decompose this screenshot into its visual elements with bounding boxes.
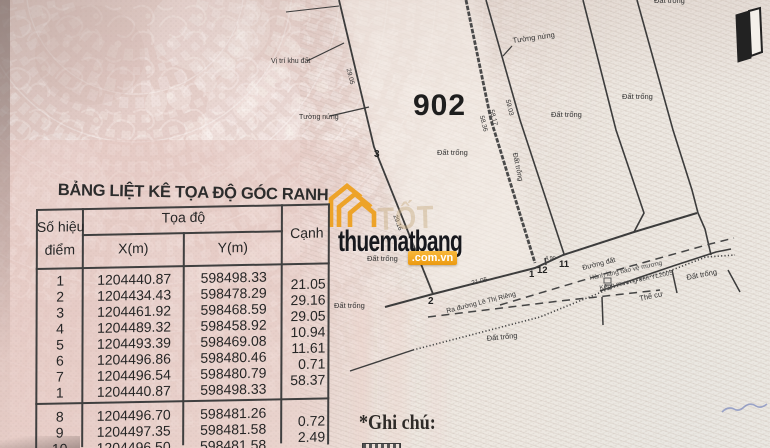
svg-text:1: 1	[529, 269, 535, 280]
svg-text:Đất trống: Đất trống	[622, 92, 653, 101]
svg-text:12: 12	[537, 265, 548, 276]
svg-text:3: 3	[374, 149, 380, 160]
svg-text:Đất trống: Đất trống	[486, 331, 518, 343]
svg-text:Vị trí khu đất: Vị trí khu đất	[271, 56, 310, 65]
svg-text:4.90: 4.90	[545, 256, 556, 262]
svg-text:29.05: 29.05	[345, 68, 356, 86]
svg-text:Tường nứng: Tường nứng	[299, 114, 339, 121]
svg-text:902: 902	[413, 89, 466, 122]
svg-text:59.03: 59.03	[504, 99, 515, 117]
svg-text:Đất trống: Đất trống	[437, 148, 468, 157]
svg-text:Đất trống: Đất trống	[551, 110, 582, 119]
svg-text:Đất trống: Đất trống	[686, 267, 718, 282]
svg-text:11: 11	[559, 259, 570, 270]
svg-text:Đường đất: Đường đất	[581, 255, 616, 272]
svg-text:Đất trống: Đất trống	[334, 301, 365, 310]
svg-text:2: 2	[428, 296, 434, 307]
svg-text:Tường nứng: Tường nứng	[512, 30, 555, 45]
svg-text:Đất trống: Đất trống	[654, 0, 685, 5]
svg-text:Thế cư: Thế cư	[639, 289, 664, 303]
